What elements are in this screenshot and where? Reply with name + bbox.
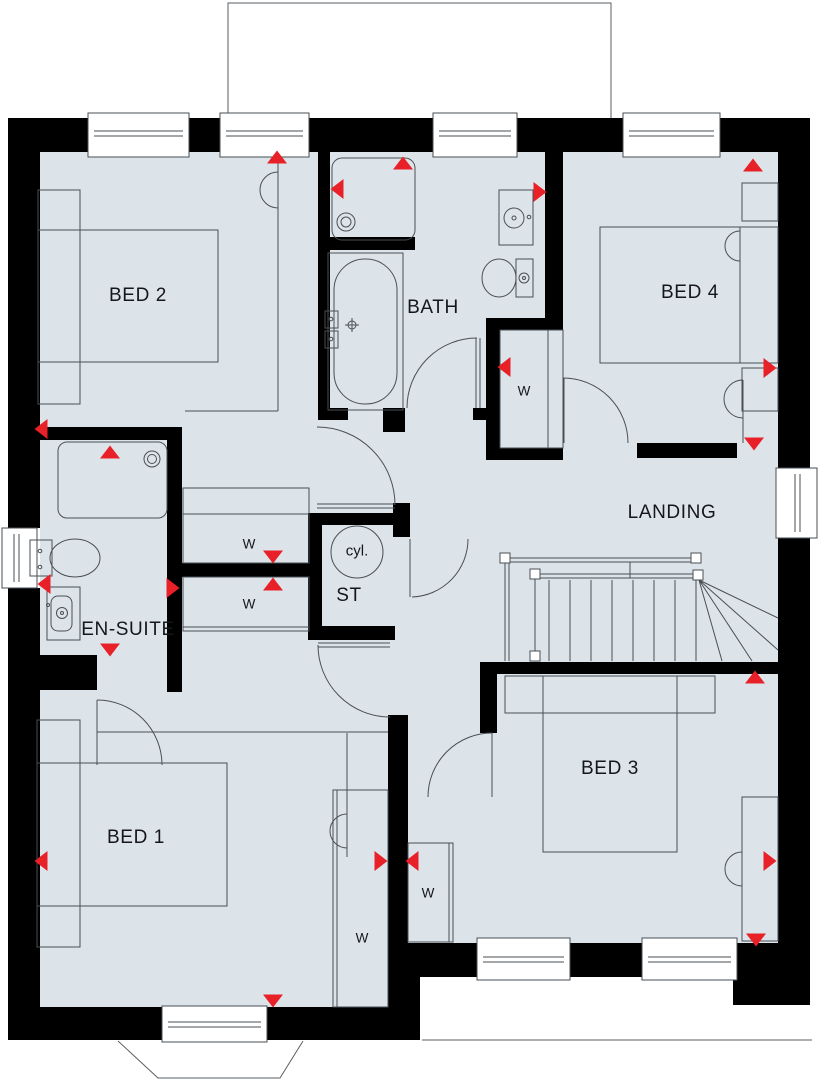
marker-arrow-up-icon: [743, 159, 763, 172]
marker-arrow-down-icon: [100, 644, 120, 657]
markers-layer: [0, 0, 819, 1080]
marker-arrow-down-icon: [746, 934, 766, 947]
marker-arrow-left-icon: [35, 851, 48, 871]
marker-arrow-left-icon: [331, 179, 344, 199]
floorplan: BED 2 BATH BED 4 EN-SUITE ST LANDING BED…: [0, 0, 819, 1080]
marker-arrow-down-icon: [744, 438, 764, 451]
marker-arrow-left-icon: [38, 574, 51, 594]
marker-arrow-up-icon: [745, 671, 765, 684]
marker-arrow-right-icon: [764, 851, 777, 871]
marker-arrow-right-icon: [375, 851, 388, 871]
marker-arrow-down-icon: [263, 551, 283, 564]
marker-arrow-left-icon: [406, 851, 419, 871]
marker-arrow-up-icon: [100, 446, 120, 459]
marker-arrow-down-icon: [263, 995, 283, 1008]
marker-arrow-right-icon: [534, 182, 547, 202]
marker-arrow-right-icon: [167, 578, 180, 598]
marker-arrow-up-icon: [263, 578, 283, 591]
marker-arrow-up-icon: [393, 157, 413, 170]
marker-arrow-left-icon: [498, 357, 511, 377]
marker-arrow-left-icon: [35, 419, 48, 439]
marker-arrow-up-icon: [267, 151, 287, 164]
marker-arrow-right-icon: [764, 358, 777, 378]
